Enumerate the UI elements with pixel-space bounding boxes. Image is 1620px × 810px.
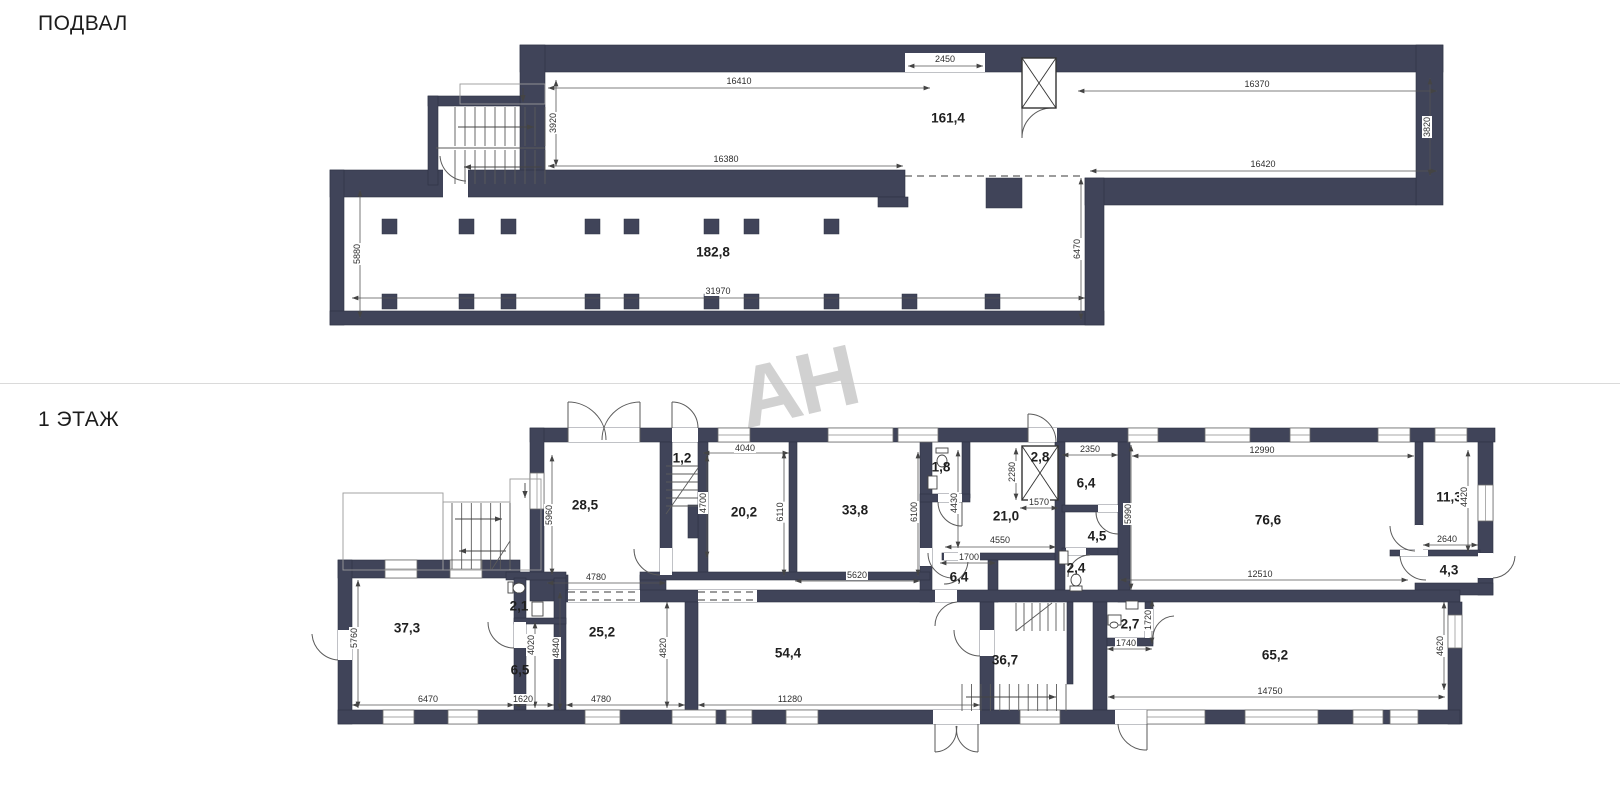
dimension-label: 12510 xyxy=(1246,569,1273,579)
room-area-label: 2,8 xyxy=(1031,450,1050,465)
dimension-label: 1740 xyxy=(1115,638,1137,648)
room-area-label: 21,0 xyxy=(993,509,1019,524)
dimension-label: 5620 xyxy=(846,570,868,580)
dimension-label: 2280 xyxy=(1007,461,1017,483)
dimension-label: 4620 xyxy=(1435,635,1445,657)
room-area-label: 33,8 xyxy=(842,503,868,518)
dimension-label: 4430 xyxy=(949,492,959,514)
room-area-label: 54,4 xyxy=(775,646,801,661)
dimension-label: 2350 xyxy=(1079,444,1101,454)
room-area-label: 76,6 xyxy=(1255,513,1281,528)
dimension-label: 4700 xyxy=(698,492,708,514)
dimension-label: 3920 xyxy=(548,112,558,134)
dimension-label: 1570 xyxy=(1028,497,1050,507)
dimension-label: 16420 xyxy=(1249,159,1276,169)
dimension-label: 16370 xyxy=(1243,79,1270,89)
dimension-label: 1620 xyxy=(512,694,534,704)
dimension-label: 5960 xyxy=(544,504,554,526)
dimension-label: 4780 xyxy=(590,694,612,704)
room-area-label: 1,2 xyxy=(673,451,692,466)
room-area-label: 2,4 xyxy=(1067,561,1086,576)
dimension-label: 4820 xyxy=(658,637,668,659)
room-area-label: 37,3 xyxy=(394,621,420,636)
dimension-label: 6470 xyxy=(417,694,439,704)
room-area-label: 2,1 xyxy=(510,599,529,614)
dimension-label: 4420 xyxy=(1459,486,1469,508)
dimension-label: 4840 xyxy=(551,637,561,659)
room-area-label: 65,2 xyxy=(1262,648,1288,663)
dimension-label: 14750 xyxy=(1256,686,1283,696)
dimension-label: 11280 xyxy=(777,694,803,704)
dimension-label: 6100 xyxy=(909,501,919,523)
dimension-label: 31970 xyxy=(704,286,731,296)
room-area-label: 20,2 xyxy=(731,505,757,520)
floor-plan-page: ПОДВАЛ 1 ЭТАЖ АН 161,4182,828,51,220,233… xyxy=(0,0,1620,810)
dimension-label: 4780 xyxy=(585,572,607,582)
dimension-label: 2640 xyxy=(1436,534,1458,544)
room-area-label: 36,7 xyxy=(992,653,1018,668)
dimension-label: 16380 xyxy=(712,154,739,164)
dimension-label: 4040 xyxy=(734,443,756,453)
dimension-label: 6470 xyxy=(1072,238,1082,260)
room-area-label: 4,3 xyxy=(1440,563,1459,578)
dimension-label: 4020 xyxy=(526,634,536,656)
dimension-label: 16410 xyxy=(725,76,752,86)
dimension-label: 2450 xyxy=(934,54,956,64)
room-area-label: 161,4 xyxy=(931,111,965,126)
room-area-label: 11,3 xyxy=(1436,490,1462,505)
dimension-label: 4550 xyxy=(989,535,1011,545)
dimension-label: 5880 xyxy=(352,243,362,265)
room-area-label: 4,5 xyxy=(1088,529,1107,544)
dimension-label: 5760 xyxy=(349,627,359,649)
dimension-label: 12990 xyxy=(1248,445,1275,455)
dimension-label: 6110 xyxy=(775,501,785,522)
dimension-label: 3820 xyxy=(1422,116,1432,138)
room-area-label: 6,4 xyxy=(950,570,969,585)
plan-drawing xyxy=(0,0,1620,810)
dimension-label: 1700 xyxy=(958,552,980,562)
room-area-label: 6,4 xyxy=(1077,476,1096,491)
columns-layer xyxy=(382,178,1022,309)
room-area-label: 25,2 xyxy=(589,625,615,640)
dimension-label: 1720 xyxy=(1143,609,1153,631)
room-area-label: 1,8 xyxy=(932,460,951,475)
room-area-label: 182,8 xyxy=(696,245,730,260)
room-area-label: 6,5 xyxy=(511,663,530,678)
room-area-label: 28,5 xyxy=(572,498,598,513)
dimension-label: 5990 xyxy=(1123,503,1133,525)
wall-openings-layer xyxy=(338,53,1493,724)
room-area-label: 2,7 xyxy=(1121,617,1140,632)
walls-layer xyxy=(330,45,1495,724)
